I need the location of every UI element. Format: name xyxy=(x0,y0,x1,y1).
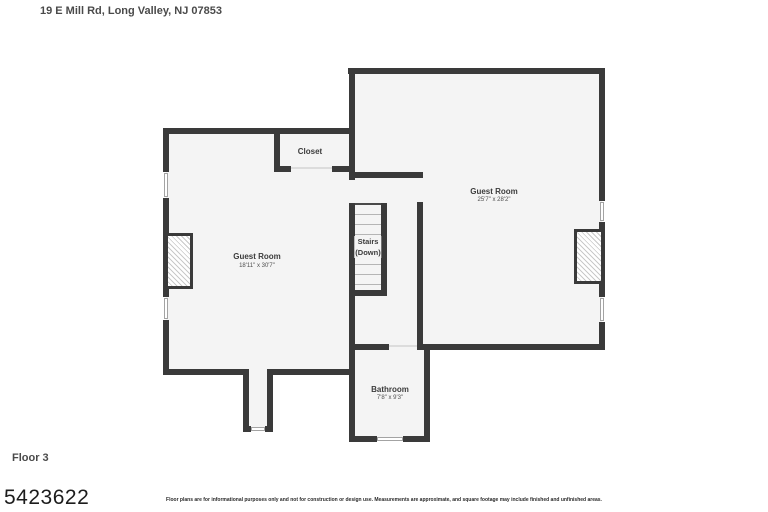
wall xyxy=(267,369,273,432)
wall xyxy=(417,344,605,350)
page-title: 19 E Mill Rd, Long Valley, NJ 07853 xyxy=(40,5,222,17)
window-icon xyxy=(251,427,265,431)
wall-stairs-right xyxy=(381,203,387,296)
wall xyxy=(243,369,249,432)
room-label-stairs: Stairs(Down) xyxy=(354,236,381,258)
wall xyxy=(349,436,377,442)
wall-landing-top xyxy=(349,172,423,178)
room-label-guest-left: Guest Room xyxy=(233,252,281,261)
room-label-closet: Closet xyxy=(298,147,322,156)
wall xyxy=(348,68,605,74)
window-icon xyxy=(600,202,604,221)
wall xyxy=(163,369,249,375)
chimney-icon xyxy=(165,233,193,289)
wall xyxy=(267,369,355,375)
disclaimer-text: Floor plans are for informational purpos… xyxy=(0,497,768,503)
room-label-guest-right: Guest Room xyxy=(470,187,518,196)
chimney-icon xyxy=(574,229,604,284)
room-label-bathroom: Bathroom xyxy=(371,385,409,394)
window-icon xyxy=(164,173,168,197)
wall-stairs-bottom xyxy=(349,290,387,296)
floor-area-right-room xyxy=(351,71,602,347)
window-icon xyxy=(377,437,403,441)
stairs-direction: (Down) xyxy=(355,248,380,257)
wall xyxy=(243,426,251,432)
window-icon xyxy=(164,298,168,319)
wall-center-upper xyxy=(349,68,355,180)
closet-door-opening xyxy=(291,167,332,169)
bathroom-door-opening xyxy=(389,345,417,347)
wall xyxy=(403,436,430,442)
window-icon xyxy=(600,298,604,321)
wall xyxy=(163,128,169,172)
stairs-name: Stairs xyxy=(358,237,379,246)
floor-plan-page: 19 E Mill Rd, Long Valley, NJ 07853 xyxy=(0,0,768,512)
wall-hall-right xyxy=(417,202,423,350)
room-dims-guest-right: 25'7" x 28'2" xyxy=(478,197,511,203)
wall xyxy=(274,166,291,172)
wall xyxy=(163,320,169,375)
wall xyxy=(163,128,355,134)
wall xyxy=(599,68,605,201)
room-dims-bathroom: 7'8" x 9'3" xyxy=(377,395,403,401)
floor-label: Floor 3 xyxy=(12,452,49,464)
wall-bathroom-right xyxy=(424,344,430,442)
wall-bathroom-top xyxy=(349,344,389,350)
room-dims-guest-left: 18'11" x 30'7" xyxy=(239,263,275,269)
